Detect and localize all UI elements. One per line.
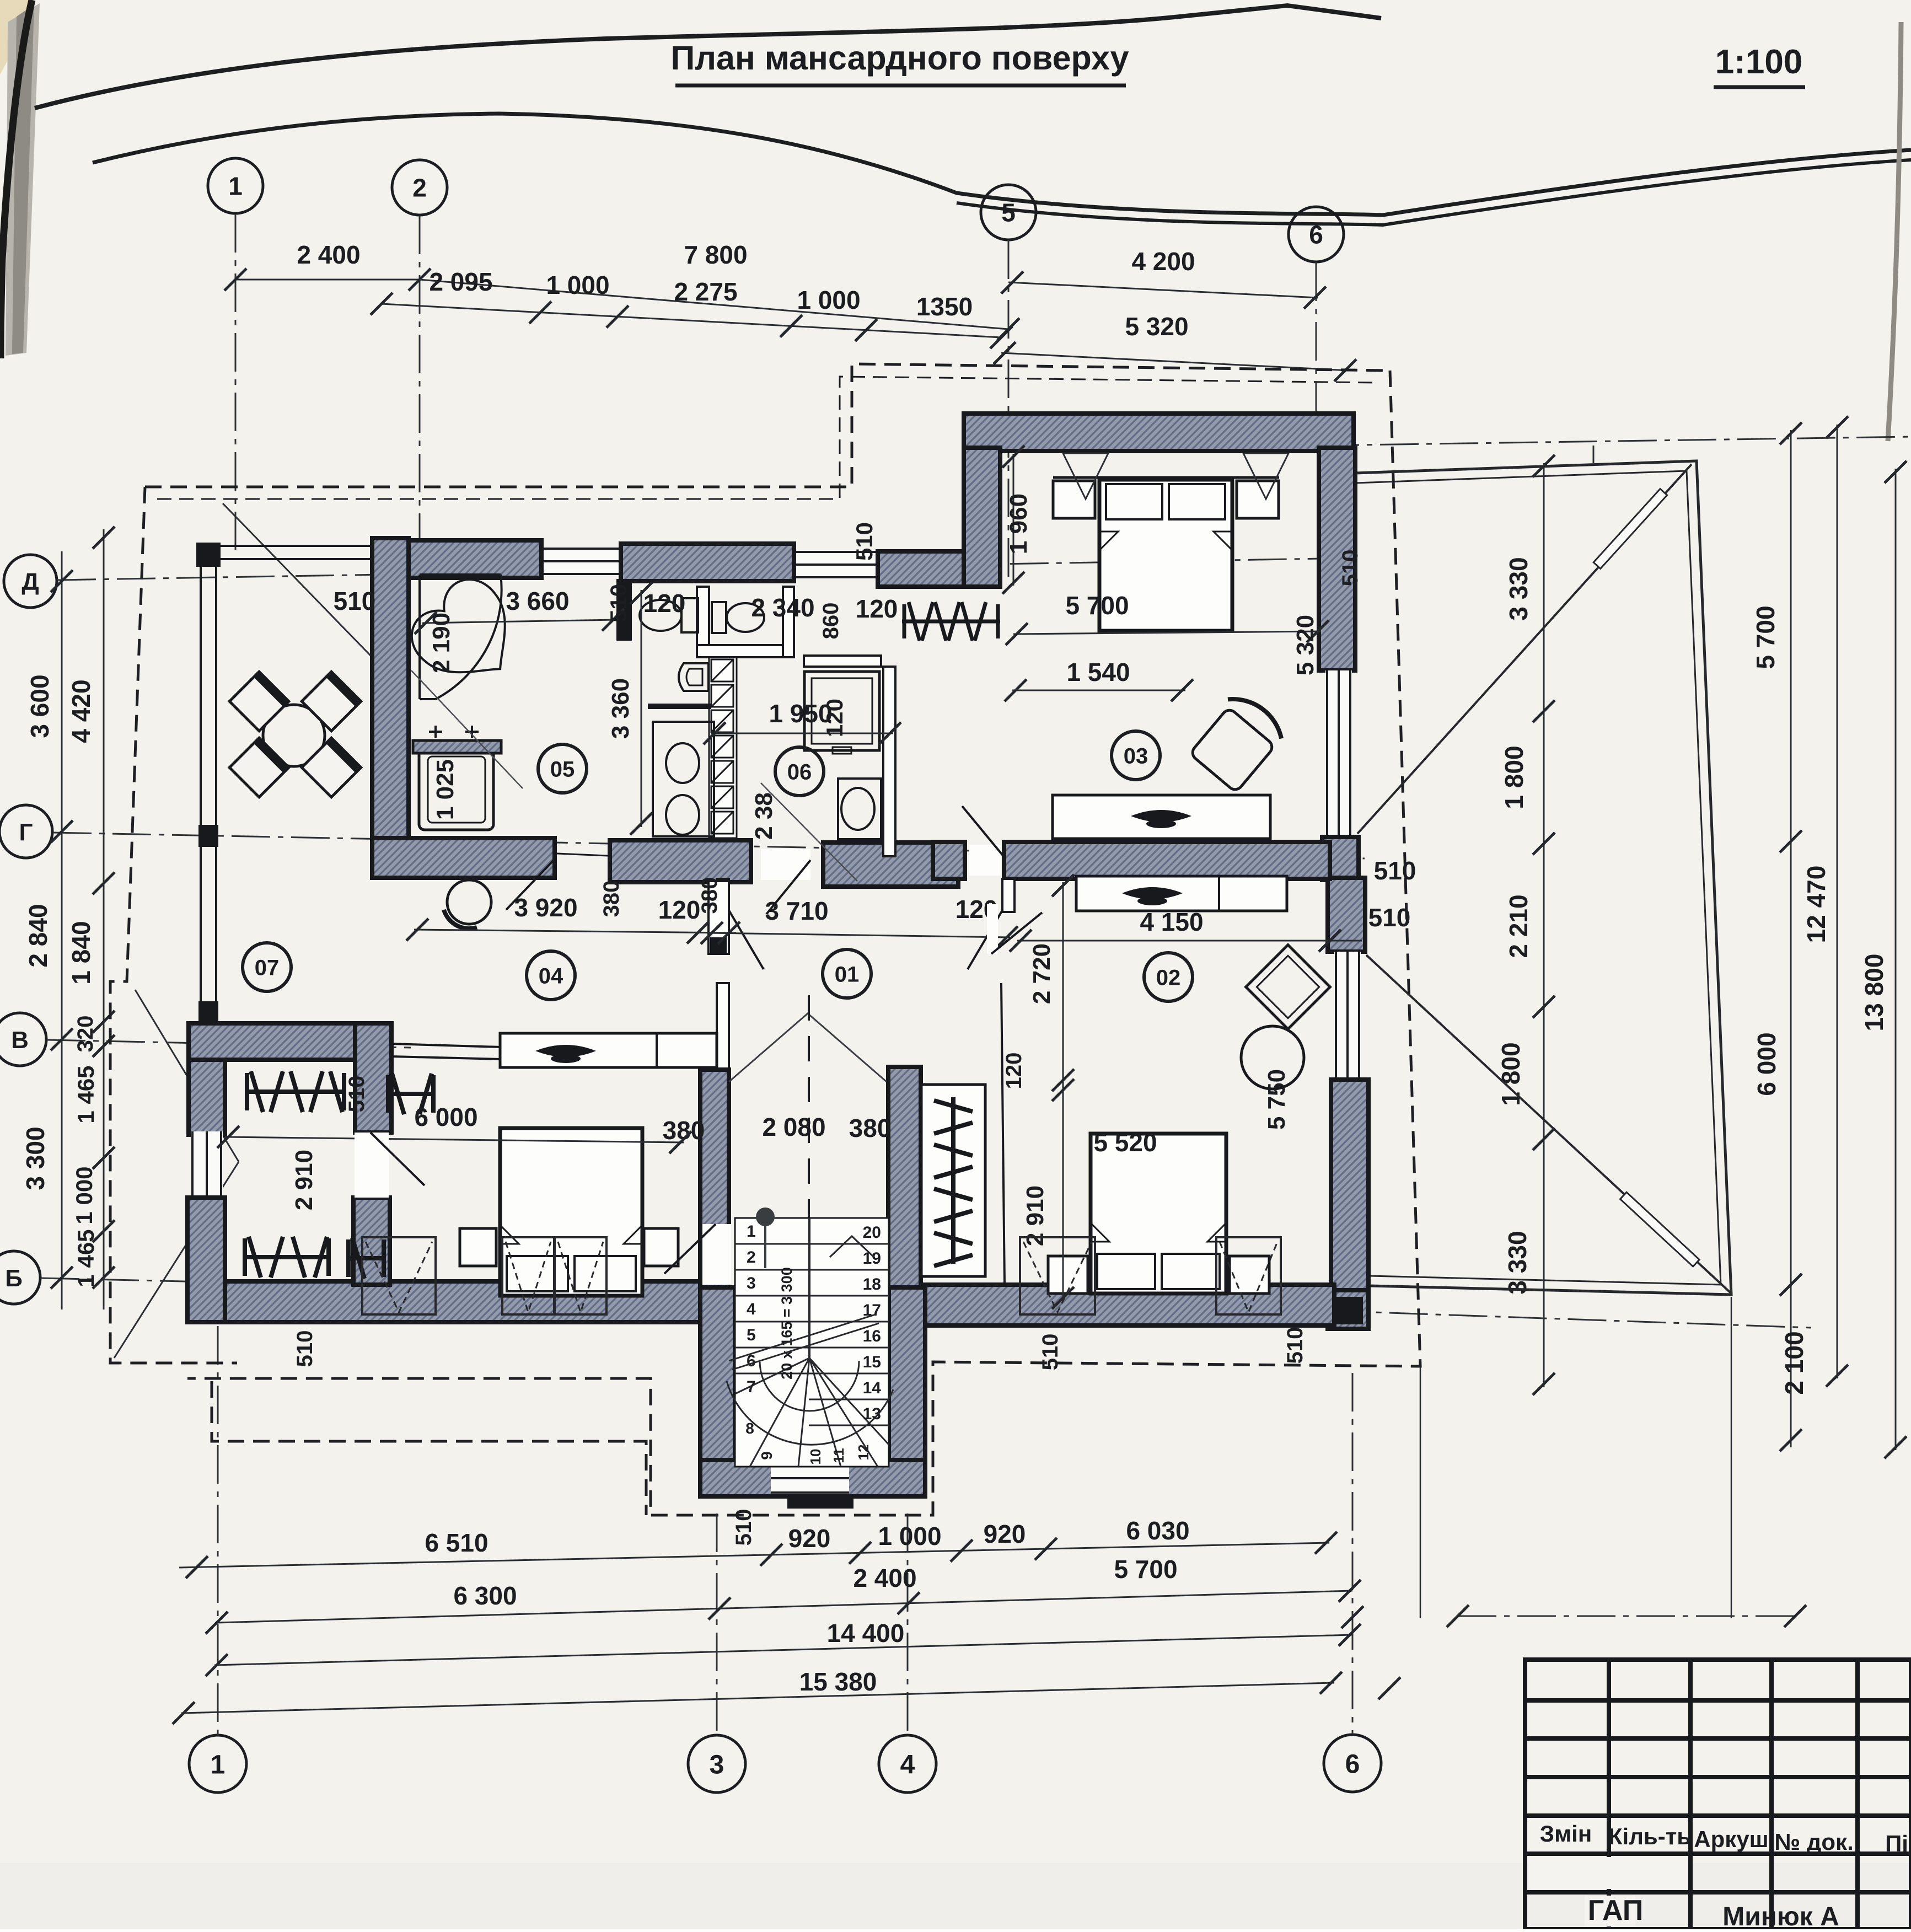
- svg-text:3 360: 3 360: [607, 678, 634, 739]
- svg-text:920: 920: [984, 1520, 1026, 1548]
- svg-text:510: 510: [1283, 1327, 1307, 1364]
- svg-text:1 025: 1 025: [432, 759, 459, 820]
- svg-text:6 300: 6 300: [453, 1581, 517, 1610]
- svg-text:3 330: 3 330: [1503, 1231, 1532, 1294]
- svg-text:860: 860: [819, 603, 843, 640]
- svg-text:6 510: 6 510: [425, 1528, 488, 1557]
- svg-text:5 320: 5 320: [1125, 312, 1188, 341]
- svg-text:04: 04: [539, 964, 563, 988]
- svg-text:1 465: 1 465: [73, 1229, 99, 1287]
- svg-text:1: 1: [211, 1750, 226, 1779]
- svg-text:2 400: 2 400: [297, 240, 360, 269]
- svg-text:17: 17: [863, 1301, 881, 1319]
- svg-text:№ док.: № док.: [1774, 1829, 1854, 1855]
- svg-text:1 840: 1 840: [67, 921, 95, 984]
- svg-text:120: 120: [856, 594, 898, 623]
- svg-text:2 080: 2 080: [762, 1113, 825, 1141]
- svg-text:510: 510: [345, 1076, 369, 1113]
- svg-text:1 540: 1 540: [1066, 658, 1130, 686]
- svg-text:2 340: 2 340: [751, 593, 814, 622]
- svg-text:510: 510: [851, 522, 877, 561]
- svg-text:01: 01: [835, 962, 860, 986]
- svg-text:11: 11: [830, 1448, 847, 1463]
- svg-text:2 275: 2 275: [674, 277, 737, 306]
- svg-text:380: 380: [697, 877, 722, 914]
- svg-text:12 470: 12 470: [1802, 866, 1831, 943]
- svg-text:5 700: 5 700: [1751, 605, 1780, 669]
- svg-text:1350: 1350: [916, 292, 973, 321]
- svg-text:510: 510: [1038, 1334, 1062, 1371]
- svg-text:13: 13: [863, 1405, 881, 1423]
- svg-text:510: 510: [605, 584, 631, 622]
- svg-text:1:100: 1:100: [1715, 43, 1803, 81]
- svg-text:06: 06: [787, 760, 812, 784]
- svg-text:5: 5: [747, 1326, 756, 1344]
- svg-text:2 38: 2 38: [750, 792, 777, 840]
- svg-text:2 210: 2 210: [1504, 894, 1533, 958]
- svg-text:4 200: 4 200: [1131, 247, 1195, 276]
- svg-text:Г: Г: [19, 819, 33, 846]
- svg-text:1: 1: [228, 172, 243, 201]
- svg-text:Змін: Змін: [1540, 1821, 1592, 1847]
- svg-text:380: 380: [849, 1114, 892, 1142]
- svg-text:510: 510: [1374, 856, 1416, 885]
- svg-text:2 095: 2 095: [429, 267, 492, 296]
- svg-text:13 800: 13 800: [1860, 954, 1888, 1032]
- svg-text:2 190: 2 190: [428, 613, 455, 673]
- svg-text:1 800: 1 800: [1496, 1042, 1525, 1105]
- svg-text:4: 4: [747, 1300, 756, 1318]
- svg-text:6 030: 6 030: [1126, 1516, 1189, 1545]
- svg-text:920: 920: [788, 1524, 831, 1553]
- svg-text:9: 9: [758, 1451, 775, 1460]
- svg-text:ГАП: ГАП: [1588, 1895, 1643, 1926]
- svg-text:15 380: 15 380: [799, 1667, 877, 1696]
- svg-text:7: 7: [747, 1378, 756, 1396]
- svg-text:1 800: 1 800: [1500, 745, 1528, 809]
- svg-text:20 х 165 = 3 300: 20 х 165 = 3 300: [779, 1267, 795, 1379]
- svg-text:03: 03: [1124, 744, 1148, 768]
- svg-text:5 750: 5 750: [1263, 1069, 1290, 1130]
- svg-text:6 000: 6 000: [1752, 1032, 1781, 1096]
- svg-text:12: 12: [855, 1445, 872, 1461]
- svg-text:Д: Д: [22, 568, 39, 595]
- svg-text:5: 5: [1001, 198, 1016, 227]
- svg-text:5 520: 5 520: [1093, 1128, 1157, 1157]
- svg-text:05: 05: [550, 757, 575, 781]
- svg-text:2: 2: [412, 174, 427, 202]
- svg-text:7 800: 7 800: [684, 240, 747, 269]
- svg-text:Кіль-ть: Кіль-ть: [1608, 1823, 1691, 1849]
- svg-text:14 400: 14 400: [827, 1619, 905, 1647]
- svg-text:Пі: Пі: [1885, 1831, 1908, 1856]
- svg-text:510: 510: [732, 1509, 756, 1546]
- svg-text:6: 6: [1309, 221, 1323, 249]
- svg-text:5 700: 5 700: [1065, 591, 1129, 620]
- svg-text:2 910: 2 910: [291, 1150, 318, 1210]
- svg-text:19: 19: [863, 1249, 881, 1268]
- svg-text:15: 15: [863, 1353, 881, 1371]
- svg-text:1 000: 1 000: [797, 286, 860, 314]
- svg-text:510: 510: [1368, 903, 1411, 932]
- svg-text:План мансардного поверху: План мансардного поверху: [670, 39, 1129, 77]
- svg-text:6: 6: [1345, 1749, 1360, 1779]
- svg-text:2 720: 2 720: [1028, 943, 1055, 1004]
- svg-text:5 700: 5 700: [1114, 1555, 1177, 1584]
- svg-text:120: 120: [658, 895, 701, 924]
- svg-text:3: 3: [710, 1750, 724, 1779]
- svg-text:510: 510: [334, 587, 376, 615]
- svg-text:4 150: 4 150: [1140, 908, 1203, 936]
- svg-text:Минюк А: Минюк А: [1722, 1902, 1839, 1929]
- svg-text:380: 380: [599, 881, 624, 917]
- svg-text:2: 2: [747, 1248, 756, 1266]
- svg-text:6 000: 6 000: [414, 1103, 477, 1131]
- svg-text:2 100: 2 100: [1780, 1331, 1808, 1394]
- svg-text:1 960: 1 960: [1005, 493, 1032, 554]
- svg-text:2 400: 2 400: [853, 1564, 916, 1592]
- svg-text:510: 510: [1338, 550, 1362, 587]
- svg-text:5 320: 5 320: [1292, 615, 1319, 675]
- svg-text:1 000: 1 000: [546, 271, 609, 299]
- svg-text:3 600: 3 600: [25, 674, 54, 738]
- svg-text:1 000: 1 000: [878, 1522, 941, 1550]
- svg-text:120: 120: [822, 699, 847, 737]
- svg-text:3 330: 3 330: [1504, 557, 1533, 620]
- svg-text:07: 07: [255, 956, 280, 980]
- svg-text:20: 20: [863, 1223, 881, 1242]
- svg-text:Б: Б: [5, 1265, 23, 1292]
- svg-text:3 710: 3 710: [765, 897, 828, 925]
- svg-text:14: 14: [863, 1379, 882, 1397]
- svg-text:4: 4: [900, 1750, 915, 1779]
- svg-text:120: 120: [643, 589, 686, 618]
- svg-text:3 660: 3 660: [506, 587, 569, 615]
- svg-text:16: 16: [863, 1327, 881, 1345]
- svg-text:Аркуш: Аркуш: [1694, 1826, 1768, 1852]
- svg-text:10: 10: [807, 1449, 824, 1465]
- svg-text:4 420: 4 420: [67, 679, 95, 743]
- svg-text:3: 3: [747, 1274, 756, 1292]
- svg-text:3 920: 3 920: [514, 893, 577, 922]
- svg-text:1: 1: [747, 1222, 756, 1241]
- svg-text:1 000: 1 000: [71, 1166, 97, 1224]
- svg-text:510: 510: [293, 1330, 317, 1367]
- svg-text:8: 8: [745, 1420, 754, 1437]
- svg-text:В: В: [11, 1027, 29, 1054]
- svg-text:1 465: 1 465: [73, 1065, 99, 1123]
- svg-text:18: 18: [863, 1275, 881, 1294]
- svg-text:120: 120: [1002, 1053, 1026, 1090]
- svg-text:3 300: 3 300: [21, 1126, 50, 1190]
- svg-text:320: 320: [73, 1016, 98, 1053]
- svg-text:2 840: 2 840: [24, 904, 52, 967]
- svg-text:02: 02: [1156, 965, 1181, 990]
